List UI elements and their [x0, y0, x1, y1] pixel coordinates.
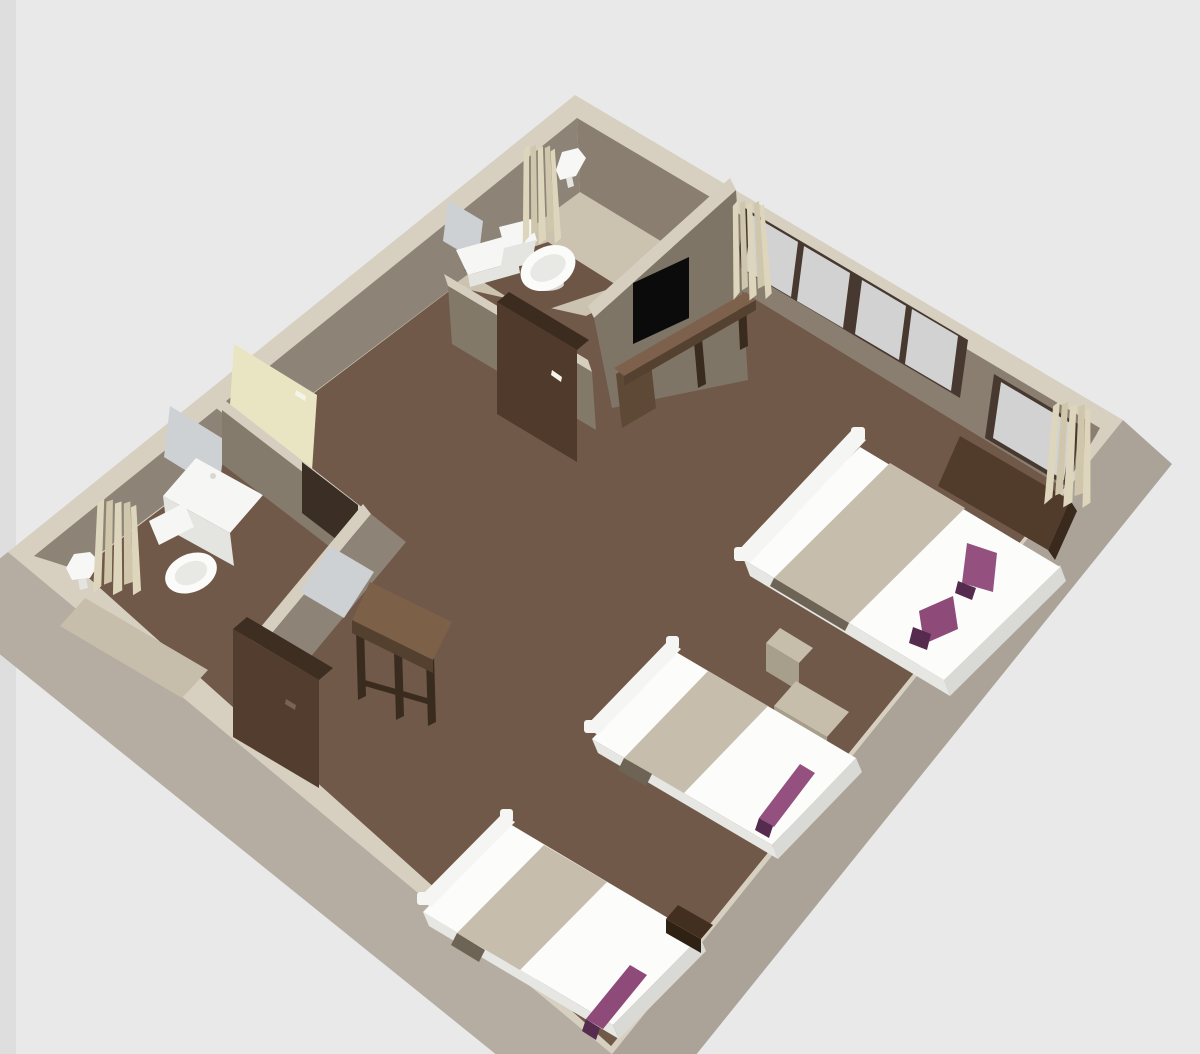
background-edge — [0, 0, 16, 1054]
bed-post — [417, 892, 430, 905]
bed-post — [584, 720, 597, 733]
bed-post — [851, 427, 865, 441]
faucet — [210, 473, 216, 479]
bed-post — [666, 636, 679, 649]
bed-post — [734, 547, 748, 561]
floorplan-render — [0, 0, 1200, 1054]
bed-post — [500, 809, 513, 822]
floorplan-canvas — [0, 0, 1200, 1054]
